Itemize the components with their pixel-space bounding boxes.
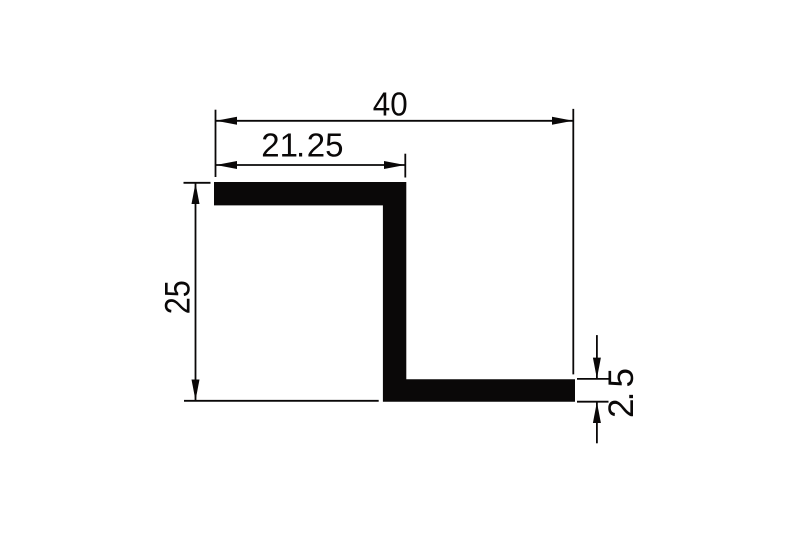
svg-text:40: 40	[373, 86, 408, 123]
svg-text:2.5: 2.5	[602, 368, 641, 418]
svg-text:21.25: 21.25	[261, 127, 343, 164]
svg-text:25: 25	[159, 280, 198, 314]
